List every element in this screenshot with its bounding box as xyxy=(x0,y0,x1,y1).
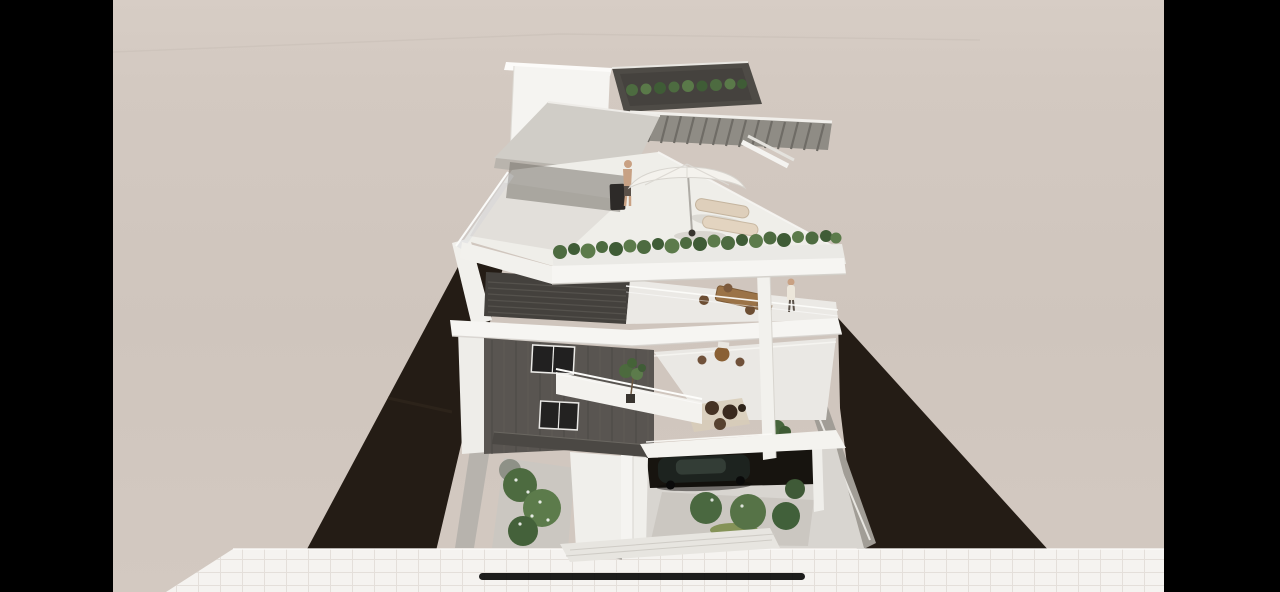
letterbox-right xyxy=(1164,0,1280,592)
column xyxy=(621,452,633,548)
entry-walkway xyxy=(570,452,648,548)
car xyxy=(656,454,753,492)
render-photo xyxy=(0,0,1280,592)
left-pier xyxy=(458,330,488,454)
garden-bed-left xyxy=(492,458,575,548)
window-upper xyxy=(531,345,574,374)
barbecue-grill xyxy=(610,184,626,211)
phone-screenshot xyxy=(0,0,1280,592)
window-lower xyxy=(539,401,578,430)
letterbox-left xyxy=(0,0,113,592)
column-short xyxy=(812,447,824,512)
home-indicator[interactable] xyxy=(479,573,805,580)
roof-deck xyxy=(612,62,762,112)
